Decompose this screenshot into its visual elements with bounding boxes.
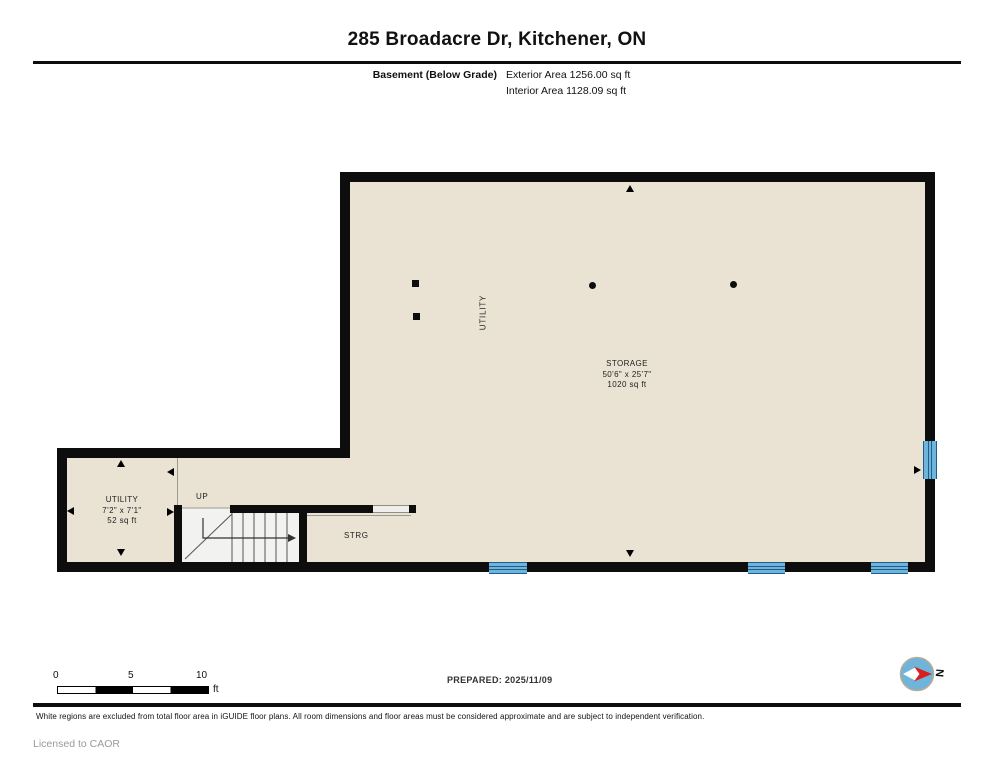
room-label-strg: STRG [344,531,369,540]
wall-stair-right [299,513,307,562]
measure-arrow-down-icon [626,550,634,557]
interior-area-label: Interior Area 1128.09 sq ft [506,85,626,97]
window [871,562,908,574]
window [489,562,527,574]
measure-arrow-up-icon [117,460,125,467]
wall-lower-wing-top [57,448,350,458]
footer-divider [33,703,961,707]
measure-arrow-up-icon [626,185,634,192]
measure-arrow-left-icon [167,468,174,476]
header-divider [33,61,961,64]
stair-direction-arrow [288,534,296,542]
room-area: 52 sq ft [72,516,172,527]
disclaimer-text: White regions are excluded from total fl… [36,712,936,721]
wall-top [340,172,935,182]
wall-right [925,172,935,572]
window [748,562,785,574]
room-label-storage: STORAGE 50'6" x 25'7" 1020 sq ft [557,359,697,391]
room-name: STORAGE [557,359,697,370]
room-name: UTILITY [72,495,172,506]
wall-stair-top [230,505,373,513]
room-dimensions: 50'6" x 25'7" [557,370,697,381]
page-title: 285 Broadacre Dr, Kitchener, ON [0,29,994,51]
post-round-icon [730,281,737,288]
door-opening [373,505,409,513]
measure-arrow-right-icon [914,466,921,474]
post-round-icon [589,282,596,289]
scale-unit-label: ft [213,684,219,695]
measure-arrow-down-icon [117,549,125,556]
stairs-up-label: UP [196,492,208,501]
post-square-icon [412,280,419,287]
room-dimensions: 7'2" x 7'1" [72,506,172,517]
wall-stub [409,505,416,513]
room-label-utility: UTILITY 7'2" x 7'1" 52 sq ft [72,495,172,527]
license-text: Licensed to CAOR [33,738,120,750]
post-square-icon [413,313,420,320]
scale-bar [57,686,209,694]
room-area: 1020 sq ft [557,380,697,391]
window [923,441,937,479]
floor-plan-page: 285 Broadacre Dr, Kitchener, ON Basement… [0,0,994,768]
scale-tick-0: 0 [53,670,59,681]
prepared-date: PREPARED: 2025/11/09 [447,675,552,685]
wall-main-left [340,172,350,458]
scale-tick-5: 5 [128,670,134,681]
wall-left-lower [57,448,67,572]
closet-boundary-line [303,515,411,516]
compass-north-label: N [933,669,946,678]
staircase-drawing [182,505,299,562]
room-label-utility-zone: UTILITY [479,290,488,336]
wall-stair-left [174,505,182,562]
floor-name-label: Basement (Below Grade) [0,69,497,81]
utility-boundary-line [177,458,178,505]
exterior-area-label: Exterior Area 1256.00 sq ft [506,69,630,81]
scale-tick-10: 10 [196,670,207,681]
